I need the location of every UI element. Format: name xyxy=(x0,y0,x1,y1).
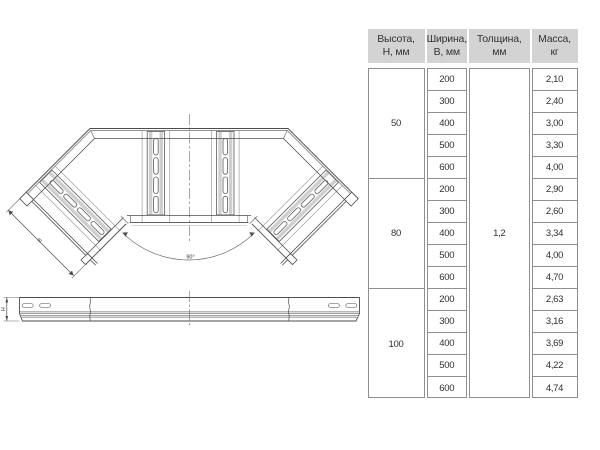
svg-text:90°: 90° xyxy=(186,255,194,261)
svg-text:H: H xyxy=(1,307,7,311)
svg-text:B: B xyxy=(37,237,44,244)
